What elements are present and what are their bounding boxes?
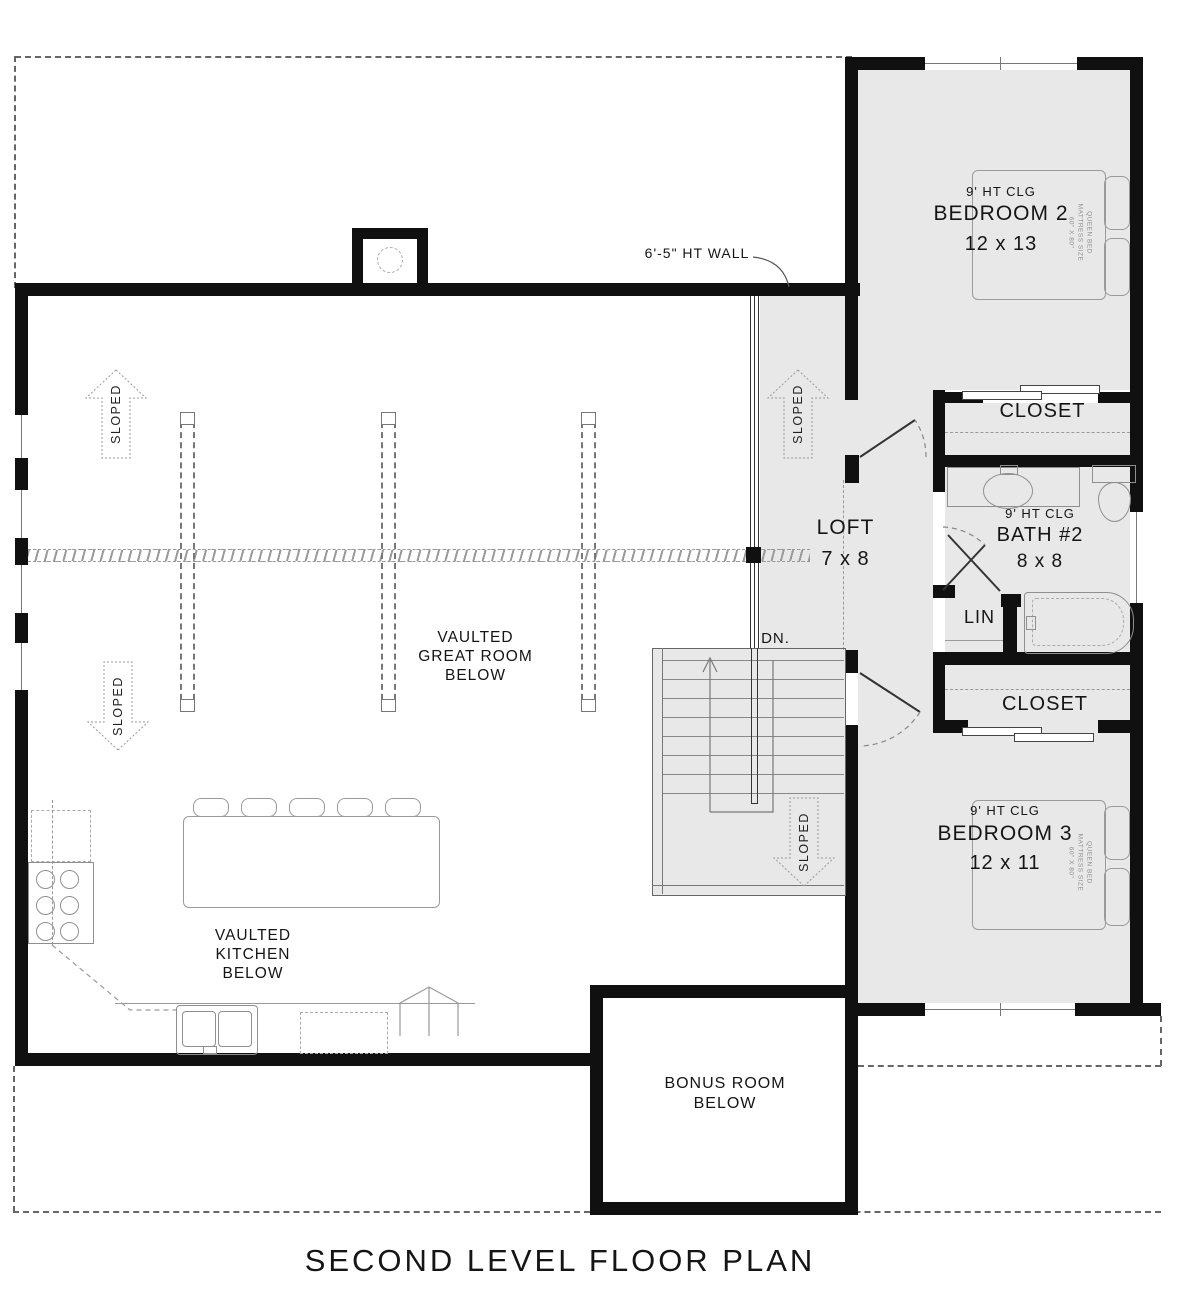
window-left-3-line bbox=[21, 565, 22, 613]
wall-closet-lower-left bbox=[933, 665, 945, 727]
bonus-room-line1: BONUS ROOM bbox=[640, 1074, 810, 1094]
wall-top-right-a bbox=[845, 57, 925, 70]
loft-dims-label: 7 x 8 bbox=[808, 548, 883, 571]
wall-bedroom3-left-stub bbox=[845, 650, 858, 673]
range-hood-outline bbox=[31, 810, 91, 862]
beam-1 bbox=[180, 412, 195, 710]
linen-shelf-line bbox=[945, 640, 1003, 641]
window-bath-right-line bbox=[1136, 512, 1137, 603]
window-bedroom2-top-line bbox=[925, 63, 1077, 64]
wall-bedroom2-door-stub bbox=[845, 455, 859, 483]
ridge-post bbox=[746, 547, 761, 563]
wall-bonus-right bbox=[845, 985, 858, 1215]
wall-linen-a bbox=[933, 585, 955, 598]
window-bedroom2-top-mullion bbox=[1000, 57, 1001, 70]
beam-2-cap-top bbox=[381, 412, 396, 425]
bed3-pillow-2 bbox=[1104, 868, 1130, 926]
ridge-line bbox=[28, 549, 810, 562]
island-stool-1 bbox=[193, 798, 229, 817]
bath2-dims-label: 8 x 8 bbox=[990, 551, 1090, 573]
range-burner-4 bbox=[60, 896, 79, 915]
roof-outline-left bbox=[14, 56, 16, 288]
island-stool-5 bbox=[385, 798, 421, 817]
island-stool-2 bbox=[241, 798, 277, 817]
stair-rail-2 bbox=[757, 648, 758, 804]
roof-outline-below-bedroom3 bbox=[858, 1065, 1161, 1067]
bath2-ceiling-label: 9' HT CLG bbox=[990, 507, 1090, 522]
roof-outline-right-lower bbox=[1160, 1016, 1162, 1066]
wall-bonus-top bbox=[590, 985, 858, 998]
kitchen-line1: VAULTED bbox=[198, 926, 308, 945]
wall-height-label: 6'-5" HT WALL bbox=[638, 245, 756, 261]
bonus-room-label: BONUS ROOM BELOW bbox=[640, 1074, 810, 1114]
bathtub-faucet bbox=[1026, 616, 1036, 630]
loft-name-label: LOFT bbox=[808, 516, 883, 540]
stair-treads bbox=[663, 660, 844, 806]
beam-1-cap-top bbox=[180, 412, 195, 425]
sloped-label: SLOPED bbox=[791, 374, 805, 454]
wall-top bbox=[15, 283, 860, 296]
kitchen-sink-basin-1 bbox=[182, 1011, 216, 1047]
kitchen-line2: KITCHEN bbox=[198, 945, 308, 964]
window-bedroom3-bottom-mullion bbox=[1000, 1003, 1001, 1016]
chimney-top bbox=[352, 228, 428, 239]
bed2-pillow-1 bbox=[1104, 176, 1130, 230]
closet-lower-shelf-line bbox=[945, 689, 1130, 690]
roof-outline-left-lower bbox=[13, 1066, 15, 1212]
counter-front-line bbox=[115, 1003, 475, 1004]
bedroom2-name-label: BEDROOM 2 bbox=[906, 202, 1096, 226]
island-stool-3 bbox=[289, 798, 325, 817]
kitchen-line3: BELOW bbox=[198, 964, 308, 983]
toilet-tank bbox=[1092, 465, 1136, 483]
sloped-label: SLOPED bbox=[111, 666, 125, 746]
wall-bonus-bottom bbox=[590, 1202, 858, 1215]
great-room-line3: BELOW bbox=[408, 666, 543, 685]
kitchen-sink-basin-2 bbox=[218, 1011, 252, 1047]
sloped-arrow-left-down: SLOPED bbox=[86, 660, 150, 752]
window-left-1-line bbox=[21, 415, 22, 458]
closet-upper-shelf-line bbox=[945, 432, 1130, 433]
bathtub-inner-line bbox=[1032, 598, 1124, 646]
chimney-left bbox=[352, 239, 363, 283]
roof-outline-top bbox=[15, 56, 852, 58]
pony-wall-line-2 bbox=[754, 296, 755, 648]
wall-bedroom3-left bbox=[845, 725, 858, 1016]
stair-rail-1 bbox=[751, 648, 752, 804]
bed2-pillow-2 bbox=[1104, 238, 1130, 296]
kitchen-island bbox=[183, 816, 440, 908]
window-left-2-line bbox=[21, 490, 22, 538]
range-burner-2 bbox=[60, 870, 79, 889]
bath-sink-faucet bbox=[1000, 465, 1018, 475]
wall-closet-lower-bottom-b bbox=[1098, 720, 1143, 733]
beam-2-cap-bottom bbox=[381, 699, 396, 712]
down-label: DN. bbox=[753, 630, 798, 647]
closet-upper-label: CLOSET bbox=[990, 400, 1095, 423]
sloped-label: SLOPED bbox=[109, 374, 123, 454]
beam-3-cap-top bbox=[581, 412, 596, 425]
beam-3-cap-bottom bbox=[581, 699, 596, 712]
great-room-line2: GREAT ROOM bbox=[408, 647, 543, 666]
beam-3 bbox=[581, 412, 596, 710]
corner-prep-sink bbox=[400, 987, 458, 1036]
range-burner-6 bbox=[60, 922, 79, 941]
chimney-right bbox=[417, 239, 428, 283]
window-left-4-line bbox=[21, 643, 22, 690]
sloped-arrow-left-up: SLOPED bbox=[84, 368, 148, 460]
roof-outline-bottom bbox=[13, 1211, 1161, 1213]
bed2-label-line1: QUEEN BED bbox=[1085, 187, 1094, 279]
chimney-flue-circle bbox=[377, 247, 403, 273]
bedroom3-name-label: BEDROOM 3 bbox=[910, 822, 1100, 846]
stair-rail-cap bbox=[751, 803, 758, 804]
sloped-arrow-loft-up: SLOPED bbox=[766, 368, 830, 460]
sloped-label: SLOPED bbox=[797, 802, 811, 882]
wall-bonus-left bbox=[590, 985, 603, 1215]
dishwasher-outline bbox=[300, 1012, 388, 1054]
closet-lower-label: CLOSET bbox=[965, 693, 1125, 716]
island-stool-4 bbox=[337, 798, 373, 817]
pony-wall-line-1 bbox=[750, 296, 751, 648]
linen-label: LIN bbox=[952, 607, 1007, 628]
bedroom3-dims-label: 12 x 11 bbox=[930, 852, 1080, 875]
kitchen-label: VAULTED KITCHEN BELOW bbox=[198, 926, 308, 983]
bath-sink bbox=[983, 473, 1033, 509]
bedroom2-ceiling-label: 9' HT CLG bbox=[926, 185, 1076, 200]
bedroom2-dims-label: 12 x 13 bbox=[926, 233, 1076, 256]
wall-bottom bbox=[15, 1053, 603, 1066]
closet-lower-slider-b bbox=[1014, 733, 1094, 742]
bedroom3-ceiling-label: 9' HT CLG bbox=[930, 804, 1080, 819]
sloped-arrow-stairs-down: SLOPED bbox=[772, 796, 836, 888]
beam-1-cap-bottom bbox=[180, 699, 195, 712]
wall-bedroom2-left bbox=[845, 57, 858, 400]
bed2-label-line2: MATTRESS SIZE bbox=[1076, 187, 1085, 279]
pony-wall-line-3 bbox=[758, 296, 759, 648]
bath2-name-label: BATH #2 bbox=[985, 524, 1095, 547]
wall-bedroom3-bottom-b bbox=[1075, 1003, 1161, 1016]
beam-2 bbox=[381, 412, 396, 710]
kitchen-sink-faucet bbox=[203, 1046, 217, 1054]
closet-upper-slider-b bbox=[962, 391, 1042, 400]
wall-bath-stub bbox=[933, 467, 945, 492]
counter-corner-dashed bbox=[52, 945, 176, 1010]
floor-plan-canvas: QUEEN BED MATTRESS SIZE 60" X 80" QUEEN … bbox=[0, 0, 1200, 1304]
counter-edge-dashed bbox=[52, 800, 53, 945]
bed3-pillow-1 bbox=[1104, 806, 1130, 860]
bonus-room-line2: BELOW bbox=[640, 1094, 810, 1114]
wall-closet-upper-top-b bbox=[1098, 392, 1143, 403]
plan-title: SECOND LEVEL FLOOR PLAN bbox=[250, 1243, 870, 1279]
wall-right-upper bbox=[1130, 57, 1143, 512]
great-room-line1: VAULTED bbox=[408, 628, 543, 647]
great-room-label: VAULTED GREAT ROOM BELOW bbox=[408, 628, 543, 685]
